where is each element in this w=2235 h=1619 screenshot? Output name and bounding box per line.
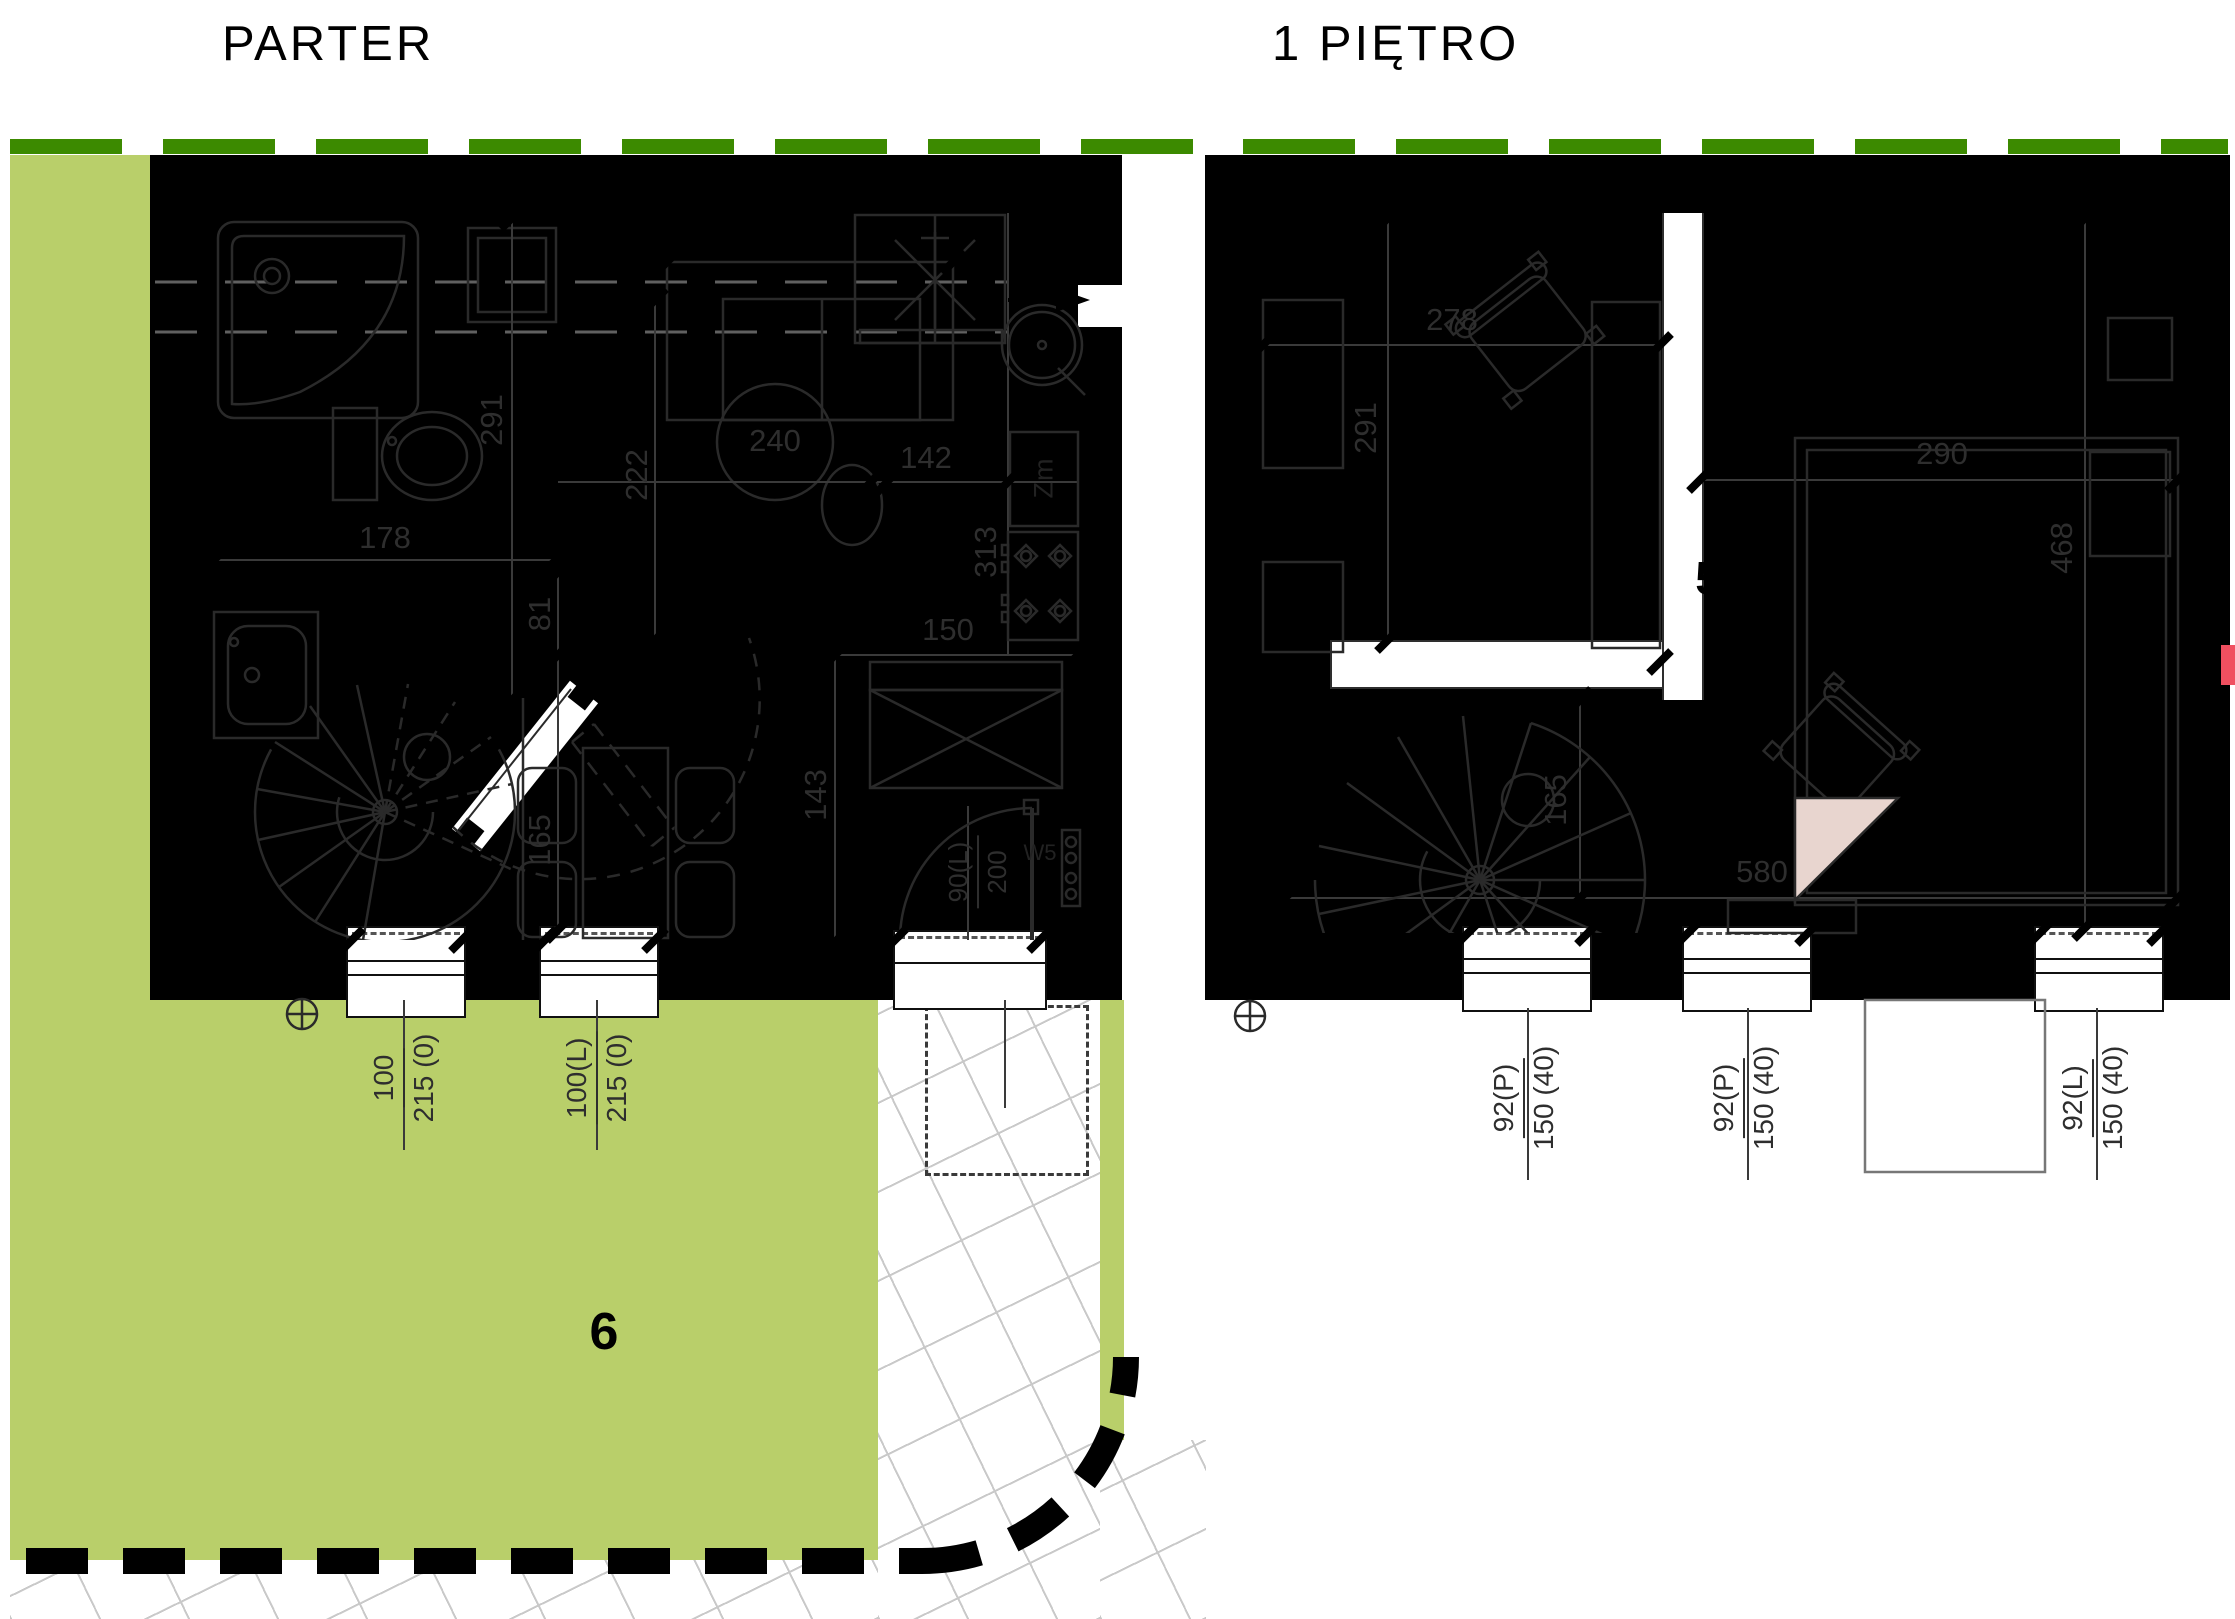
window-label-pietro-2: 92(P) 150 (40)	[1708, 1040, 1780, 1156]
dim-468: 468	[2044, 522, 2080, 574]
entry-door-opening	[893, 930, 1047, 1010]
dim-240: 240	[749, 423, 801, 459]
window-pietro-3	[2034, 926, 2164, 1012]
window-parter-1	[346, 926, 466, 1018]
door-label-90-200: 90(L) 200	[943, 836, 1013, 909]
pietro-corner-notch	[2085, 213, 2180, 310]
bathroom-right-wall	[558, 213, 600, 690]
floorplan-sheet: PARTER 1 PIĘTRO	[0, 0, 2235, 1619]
dim-313: 313	[968, 526, 1004, 578]
dim-165-parter: 165	[522, 814, 558, 866]
paving-corner	[1100, 1440, 1206, 1619]
dim-222: 222	[619, 449, 655, 501]
garden-right-strip	[1100, 1000, 1124, 1440]
dim-291-parter: 291	[474, 394, 510, 446]
dim-580: 580	[1736, 854, 1788, 890]
window-label-pietro-1: 92(P) 150 (40)	[1488, 1040, 1560, 1156]
window-pietro-1	[1462, 926, 1592, 1012]
room-label-entry: 1	[913, 781, 939, 835]
dim-142: 142	[900, 440, 952, 476]
title-parter: PARTER	[222, 16, 434, 72]
window-lintel-dash	[2040, 932, 2158, 935]
garden-main	[10, 1000, 878, 1560]
dim-278: 278	[1426, 302, 1478, 338]
dim-150: 150	[922, 612, 974, 648]
window-lintel-dash	[545, 932, 653, 935]
room-label-study: 4	[1535, 401, 1561, 455]
dim-291-pietro: 291	[1348, 402, 1384, 454]
roof-outline-below	[1865, 1000, 2045, 1172]
window-lintel-dash	[1468, 932, 1586, 935]
stair-landing-edge	[1330, 640, 1664, 689]
vent-wall-slot	[1078, 285, 1122, 327]
survey-point-pietro	[1235, 1001, 1265, 1031]
room-label-garden: 6	[590, 1302, 619, 1362]
dim-290: 290	[1916, 436, 1968, 472]
dim-165-pietro: 165	[1538, 774, 1574, 826]
bathroom-bottom-wall	[208, 825, 455, 868]
hedge-line-left	[10, 139, 1206, 154]
pietro-wall-stub	[1263, 468, 1303, 562]
window-label-parter-2: 100(L) 215 (0)	[561, 1028, 633, 1129]
room-label-bedroom: 5	[1695, 551, 1721, 605]
door-tag-w5: W5	[1024, 840, 1057, 866]
toilet-pocket-wall	[208, 396, 333, 510]
room-label-living: 2	[729, 533, 755, 587]
dim-178: 178	[359, 520, 411, 556]
window-parter-2	[539, 926, 659, 1018]
dim-143: 143	[798, 769, 834, 821]
wall-marker-red	[2221, 645, 2235, 685]
title-pietro: 1 PIĘTRO	[1272, 16, 1519, 72]
window-pietro-2	[1682, 926, 1812, 1012]
room-label-bathroom: 3	[449, 581, 475, 635]
plot-boundary-dashed	[26, 1548, 922, 1574]
window-label-pietro-3: 92(L) 150 (40)	[2057, 1040, 2129, 1156]
window-lintel-dash	[1688, 932, 1806, 935]
door-lintel-dash	[899, 936, 1041, 939]
hedge-line-right	[1243, 139, 2228, 154]
appliance-label-zm: Zm	[1029, 458, 1060, 499]
window-lintel-dash	[352, 932, 460, 935]
window-label-parter-1: 100 215 (0)	[368, 1028, 440, 1129]
room-label-vestibule: 5	[583, 635, 609, 689]
path-dashed-outline	[925, 1005, 1089, 1176]
dim-81: 81	[522, 597, 558, 631]
room-partition	[1662, 213, 1704, 700]
